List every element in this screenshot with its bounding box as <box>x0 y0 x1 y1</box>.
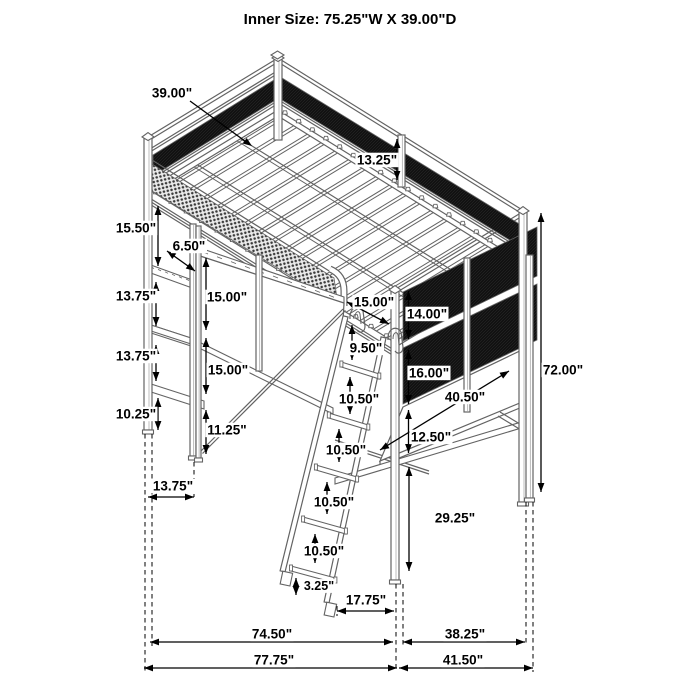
svg-text:15.00": 15.00" <box>207 290 247 305</box>
svg-text:10.50": 10.50" <box>326 443 366 458</box>
svg-text:72.00": 72.00" <box>543 363 583 378</box>
svg-text:17.75": 17.75" <box>346 593 386 608</box>
svg-text:Inner Size: 75.25"W X 39.00"D: Inner Size: 75.25"W X 39.00"D <box>244 11 457 28</box>
svg-text:10.25": 10.25" <box>116 407 156 422</box>
svg-text:15.50": 15.50" <box>116 221 156 236</box>
svg-text:10.50": 10.50" <box>314 495 354 510</box>
svg-text:11.25": 11.25" <box>207 423 246 438</box>
svg-text:12.50": 12.50" <box>411 430 451 445</box>
svg-text:15.00": 15.00" <box>354 295 394 310</box>
svg-text:38.25": 38.25" <box>445 627 485 642</box>
svg-text:15.00": 15.00" <box>208 363 248 378</box>
svg-text:10.50": 10.50" <box>304 544 344 559</box>
svg-text:74.50": 74.50" <box>252 627 292 642</box>
svg-text:29.25": 29.25" <box>435 511 475 526</box>
svg-text:16.00": 16.00" <box>409 366 449 381</box>
svg-text:9.50": 9.50" <box>350 341 383 356</box>
svg-text:41.50": 41.50" <box>443 653 483 668</box>
svg-text:40.50": 40.50" <box>445 390 485 405</box>
svg-text:13.75": 13.75" <box>116 349 156 364</box>
svg-text:14.00": 14.00" <box>407 307 447 322</box>
svg-text:13.75": 13.75" <box>153 479 193 494</box>
svg-text:10.50": 10.50" <box>339 392 379 407</box>
svg-text:6.50": 6.50" <box>173 239 206 254</box>
svg-text:77.75": 77.75" <box>254 653 294 668</box>
svg-text:39.00": 39.00" <box>152 86 192 101</box>
svg-text:3.25": 3.25" <box>304 579 334 593</box>
svg-text:13.25": 13.25" <box>357 153 397 168</box>
svg-text:13.75": 13.75" <box>116 289 156 304</box>
